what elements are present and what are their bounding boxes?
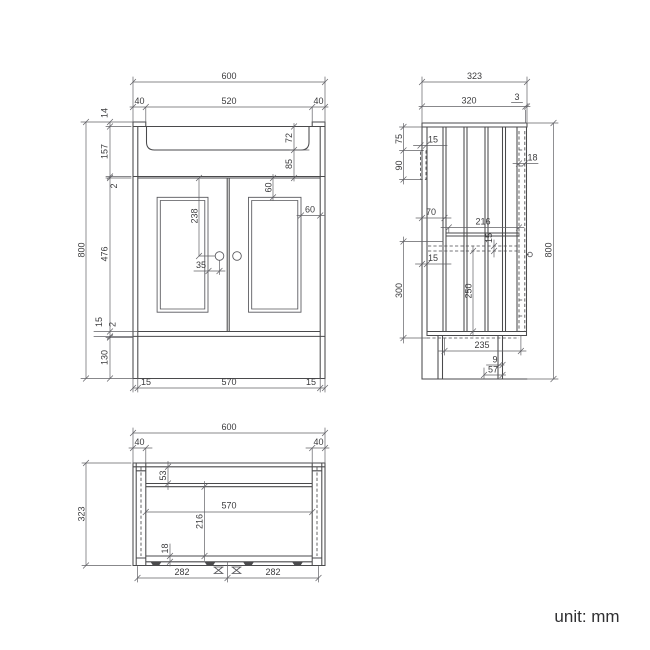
dim-side-front-lip: 3 [514,92,519,102]
plan-view: 600 40 40 323 53 570 216 18 282 282 [77,422,330,582]
side-view: 323 320 3 800 75 90 15 18 70 216 15 15 3… [394,71,558,382]
dim-side-under-shelf-clearance: 250 [464,283,474,298]
dim-front-handle-offset: 35 [196,260,206,270]
dim-side-hinge-plate-width: 15 [428,135,438,145]
dim-side-foot-recess: 57 [488,365,498,375]
dim-front-left-upstand: 40 [134,96,144,106]
dim-plan-right-foot-span: 282 [265,567,280,577]
dim-side-door-thickness: 18 [527,153,537,163]
right-door-handle [233,252,242,261]
dim-front-plinth-height: 130 [100,350,110,365]
dim-side-plinth-depth: 235 [474,340,489,350]
plan-dimension-ticks [83,430,327,580]
dim-front-right-upstand: 40 [313,96,323,106]
front-cabinet-outline [133,122,325,379]
dim-side-overall-depth: 323 [467,71,482,81]
drawing-page: 600 40 520 40 14 157 2 476 15 2 130 800 … [0,0,650,650]
side-dimension-ticks [401,79,556,381]
dim-front-basin-width: 520 [221,96,236,106]
dim-plan-overall-width: 600 [221,422,236,432]
dim-front-panel-top-inset: 60 [264,182,274,192]
dim-front-top-section: 157 [100,144,110,159]
dim-front-overall-width: 600 [221,71,236,81]
dim-plan-internal-depth: 216 [195,514,205,529]
dim-front-handle-drop: 238 [190,208,200,223]
dim-front-top-gap: 2 [109,183,119,188]
dim-front-left-side-thickness: 15 [141,377,151,387]
side-dimension-lines [400,77,559,379]
dim-side-hinge-top-offset: 75 [394,134,404,144]
dim-plan-left-corner: 40 [134,437,144,447]
dim-front-overall-height: 800 [77,242,87,257]
dim-plan-internal-width: 570 [221,501,236,511]
dim-side-foot-gap: 9 [492,355,497,365]
dim-front-basin-depth: 72 [284,133,294,143]
plan-dimension-lines [82,428,329,582]
dim-front-upstand-height: 14 [100,108,110,118]
dim-front-basin-to-door: 85 [284,159,294,169]
dim-plan-overall-depth: 323 [77,506,87,521]
dim-front-door-height: 476 [100,246,110,261]
dim-front-bottom-gap: 2 [108,322,118,327]
left-door-handle [215,252,224,261]
dim-side-back-panel-thickness: 15 [428,253,438,263]
dim-plan-left-foot-span: 282 [174,567,189,577]
dim-side-overall-height: 800 [544,242,554,257]
dim-side-hinge-plate-height: 90 [394,160,404,170]
dim-side-shelf-thickness: 15 [484,233,494,243]
front-view: 600 40 520 40 14 157 2 476 15 2 130 800 … [77,71,329,392]
unit-note: unit: mm [554,607,619,626]
dim-side-top-depth: 320 [461,96,476,106]
dim-plan-right-corner: 40 [313,437,323,447]
dim-side-shelf-to-base: 300 [394,283,404,298]
dim-front-right-side-thickness: 15 [306,377,316,387]
vanity-technical-drawing: 600 40 520 40 14 157 2 476 15 2 130 800 … [0,0,650,650]
dim-front-internal-width: 570 [221,377,236,387]
dim-front-panel-side-inset: 60 [305,205,315,215]
dim-side-back-offset: 70 [426,207,436,217]
dim-front-bottom-rail: 15 [94,317,104,327]
dim-side-internal-depth: 216 [475,217,490,227]
dim-plan-door-thickness: 18 [160,543,170,553]
dim-plan-back-rail-depth: 53 [158,470,168,480]
